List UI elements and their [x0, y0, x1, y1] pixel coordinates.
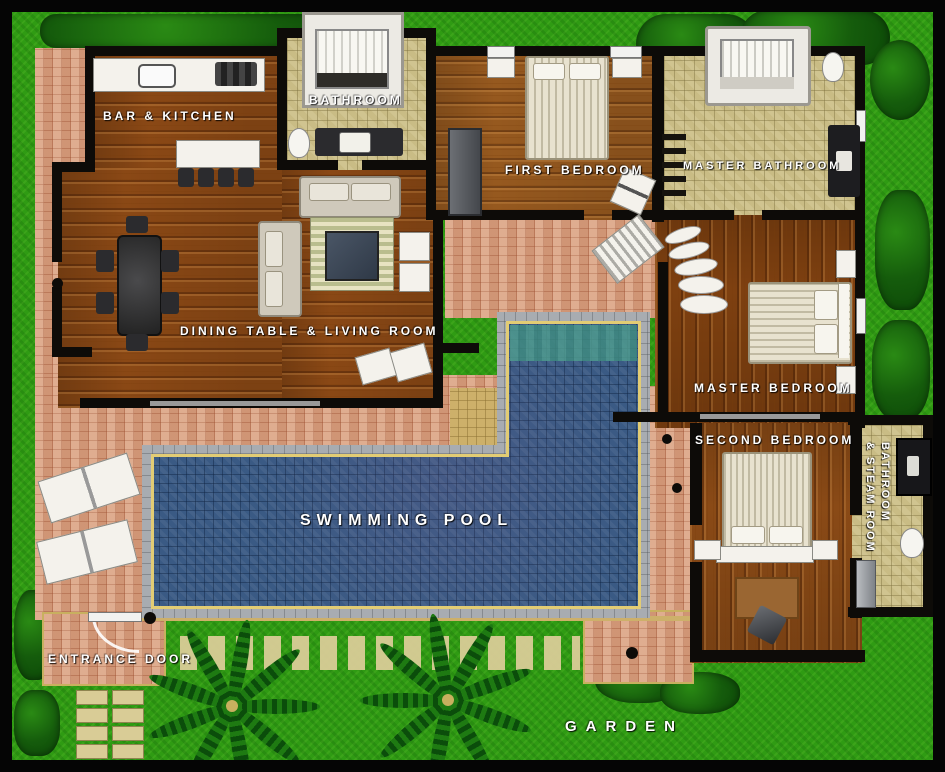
- bar-stool: [178, 168, 194, 187]
- nightstand: [836, 250, 856, 278]
- entrance-door-frame: [88, 612, 142, 622]
- nightstand: [487, 58, 515, 78]
- label-entrance-door: ENTRANCE DOOR: [48, 652, 193, 666]
- wall: [658, 262, 668, 422]
- wall: [652, 210, 734, 220]
- first-bedroom-bed: [525, 56, 609, 160]
- window-sill: [610, 46, 642, 58]
- label-bathroom: BATHROOM: [309, 93, 403, 107]
- coffee-table: [325, 231, 379, 281]
- master-bed: [748, 282, 852, 364]
- pool-shallow-steps: [510, 325, 637, 361]
- stepping-stone: [678, 276, 724, 294]
- kitchen-stove: [215, 62, 257, 86]
- wall: [690, 562, 702, 662]
- bush: [875, 190, 930, 310]
- wall: [52, 347, 92, 357]
- pillar: [662, 434, 672, 444]
- wall: [52, 162, 62, 262]
- bath-vanity: [315, 128, 403, 156]
- wall: [286, 160, 338, 170]
- kitchen-sink: [138, 64, 176, 88]
- dining-chair: [126, 334, 148, 351]
- wardrobe: [448, 128, 482, 216]
- label-master-bedroom: MASTER BEDROOM: [694, 381, 853, 395]
- dining-chair: [161, 250, 179, 272]
- stepping-stone: [76, 726, 108, 741]
- stepping-stone: [76, 690, 108, 705]
- stepping-stone: [112, 708, 144, 723]
- bush: [14, 690, 60, 756]
- sofa: [299, 176, 401, 218]
- label-master-bathroom: MASTER BATHROOM: [683, 160, 841, 172]
- label-second-bedroom: SECOND BEDROOM: [695, 433, 854, 447]
- villa-floor-plan: BAR & KITCHEN BATHROOM FIRST BEDROOM MAS…: [0, 0, 945, 772]
- sofa: [258, 221, 302, 317]
- pillar: [672, 483, 682, 493]
- wall: [848, 415, 935, 425]
- window-sill: [856, 298, 866, 334]
- pillar: [144, 612, 156, 624]
- bar-stool: [218, 168, 234, 187]
- nightstand: [694, 540, 721, 560]
- sliding-door: [150, 401, 320, 406]
- wall: [362, 160, 428, 170]
- pillar: [626, 647, 638, 659]
- stepping-stone: [76, 744, 108, 759]
- stepping-stone: [112, 690, 144, 705]
- stepping-stone: [680, 295, 728, 314]
- dining-table: [117, 235, 162, 336]
- toilet: [288, 128, 310, 158]
- wall: [433, 343, 479, 353]
- sliding-door: [700, 414, 820, 419]
- dining-chair: [96, 250, 114, 272]
- pillar: [52, 278, 63, 289]
- bar-island: [176, 140, 260, 168]
- wall: [277, 28, 287, 170]
- bush: [872, 320, 930, 420]
- nightstand: [812, 540, 838, 560]
- toilet: [822, 52, 844, 82]
- pouf: [399, 232, 430, 261]
- wall: [426, 28, 436, 220]
- toilet: [900, 528, 924, 558]
- wall: [433, 215, 443, 408]
- stepping-stone: [112, 744, 144, 759]
- label-garden: GARDEN: [565, 718, 684, 735]
- pouf: [399, 263, 430, 292]
- stepping-stone: [76, 708, 108, 723]
- stepping-stone: [112, 726, 144, 741]
- dining-chair: [161, 292, 179, 314]
- dining-floor: [58, 168, 282, 408]
- nightstand: [612, 58, 642, 78]
- master-bathtub: [705, 26, 811, 106]
- label-swimming-pool: SWIMMING POOL: [300, 512, 513, 530]
- label-first-bedroom: FIRST BEDROOM: [505, 163, 645, 177]
- label-bar-kitchen: BAR & KITCHEN: [103, 109, 237, 123]
- label-bathroom-steam-room: BATHROOM & STEAM ROOM: [862, 442, 892, 612]
- wall: [762, 210, 865, 220]
- second-bedroom-bed: [722, 452, 812, 550]
- window-sill: [487, 46, 515, 58]
- dining-chair: [96, 292, 114, 314]
- wall: [85, 46, 287, 56]
- bar-stool: [198, 168, 214, 187]
- dining-chair: [126, 216, 148, 233]
- bush: [870, 40, 930, 120]
- bar-stool: [238, 168, 254, 187]
- label-dining-living: DINING TABLE & LIVING ROOM: [180, 324, 438, 338]
- bed-bench: [716, 546, 814, 563]
- shower: [896, 438, 932, 496]
- patio-path-southeast: [583, 610, 694, 684]
- wall: [690, 650, 865, 662]
